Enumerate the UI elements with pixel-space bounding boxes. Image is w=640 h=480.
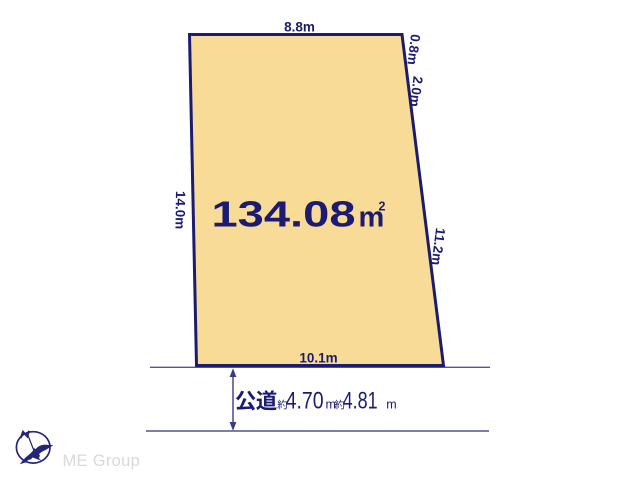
svg-text:m: m bbox=[386, 398, 396, 412]
svg-text:4.81: 4.81 bbox=[343, 388, 378, 415]
svg-text:134.08: 134.08 bbox=[212, 194, 356, 235]
svg-text:4.70: 4.70 bbox=[286, 388, 324, 415]
svg-text:14.0m: 14.0m bbox=[172, 191, 188, 230]
svg-text:ME Group: ME Group bbox=[63, 452, 141, 470]
svg-text:8.8m: 8.8m bbox=[284, 20, 315, 35]
svg-text:2: 2 bbox=[379, 200, 386, 214]
svg-text:10.1m: 10.1m bbox=[299, 351, 337, 366]
svg-text:m: m bbox=[326, 398, 336, 412]
